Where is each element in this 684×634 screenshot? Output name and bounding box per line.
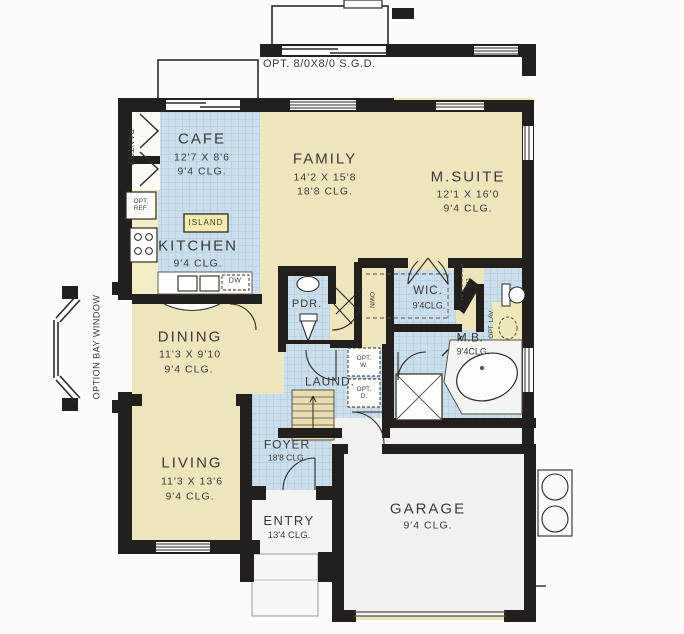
room-label-kitchen: KITCHEN [158, 238, 238, 257]
label-dw: DW [229, 278, 241, 287]
room-clg-living: 9'4 CLG. [165, 490, 214, 503]
label-opt-lav: OPT. LAV. [488, 309, 496, 338]
room-label-entry: ENTRY [263, 513, 314, 529]
label-lin: LIN [462, 278, 470, 287]
room-clg-kitchen: 9'4 CLG. [173, 257, 222, 270]
room-label-mb: M.B. [457, 331, 484, 346]
room-clg-foyer: 18'8 CLG. [268, 453, 306, 464]
room-clg-msuite: 9'4 CLG. [443, 202, 492, 215]
room-dims-dining: 11'3 X 9'10 [159, 348, 221, 361]
room-label-family: FAMILY [293, 151, 357, 170]
bay-window-option [54, 282, 124, 413]
room-label-dining: DINING [158, 329, 223, 348]
room-label-msuite: M.SUITE [431, 169, 506, 188]
label-pantry: PANTRY [125, 129, 135, 167]
label-own: OWN [367, 292, 375, 308]
pdr-sink [297, 277, 319, 292]
room-label-foyer: FOYER [264, 438, 310, 453]
note-option-bay-window: OPTION BAY WINDOW [91, 295, 102, 400]
room-clg-family: 18'8 CLG. [297, 185, 353, 198]
room-label-living: LIVING [161, 455, 222, 474]
label-opt-d: OPT. D. [354, 386, 374, 400]
room-dims-living: 11'3 X 13'6 [161, 475, 223, 488]
room-dims-cafe: 12'7 X 8'6 [174, 151, 230, 164]
entry-porch [252, 554, 318, 616]
room-clg-garage: 9'4 CLG. [403, 519, 452, 532]
range-stove [130, 228, 157, 262]
room-clg-dining: 9'4 CLG. [164, 363, 213, 376]
room-clg-wic: 9'4CLG. [413, 300, 446, 311]
room-label-garage: GARAGE [390, 501, 466, 520]
note-opt-sgd: OPT. 8/0X8/0 S.G.D. [263, 58, 376, 72]
room-label-pdr: PDR. [292, 298, 322, 312]
room-dims-msuite: 12'1 X 16'0 [437, 188, 500, 201]
room-clg-mb: 9'4CLG. [457, 346, 490, 357]
equipment-pads [536, 470, 572, 586]
label-island: ISLAND [189, 218, 224, 228]
floor-plan-page: OPT. 8/0X8/0 S.G.D. OPTION BAY WINDOW CA… [0, 0, 684, 634]
room-label-laund: LAUND. [305, 375, 355, 390]
room-dims-family: 14'2 X 15'8 [294, 171, 357, 184]
room-label-cafe: CAFE [178, 131, 226, 150]
room-clg-cafe: 9'4 CLG. [177, 165, 226, 178]
room-clg-entry: 13'4 CLG. [268, 530, 310, 542]
room-label-wic: WIC. [413, 284, 443, 298]
label-opt-w: OPT. W. [354, 355, 374, 369]
label-opt-ref: OPT. REF. [129, 198, 153, 212]
